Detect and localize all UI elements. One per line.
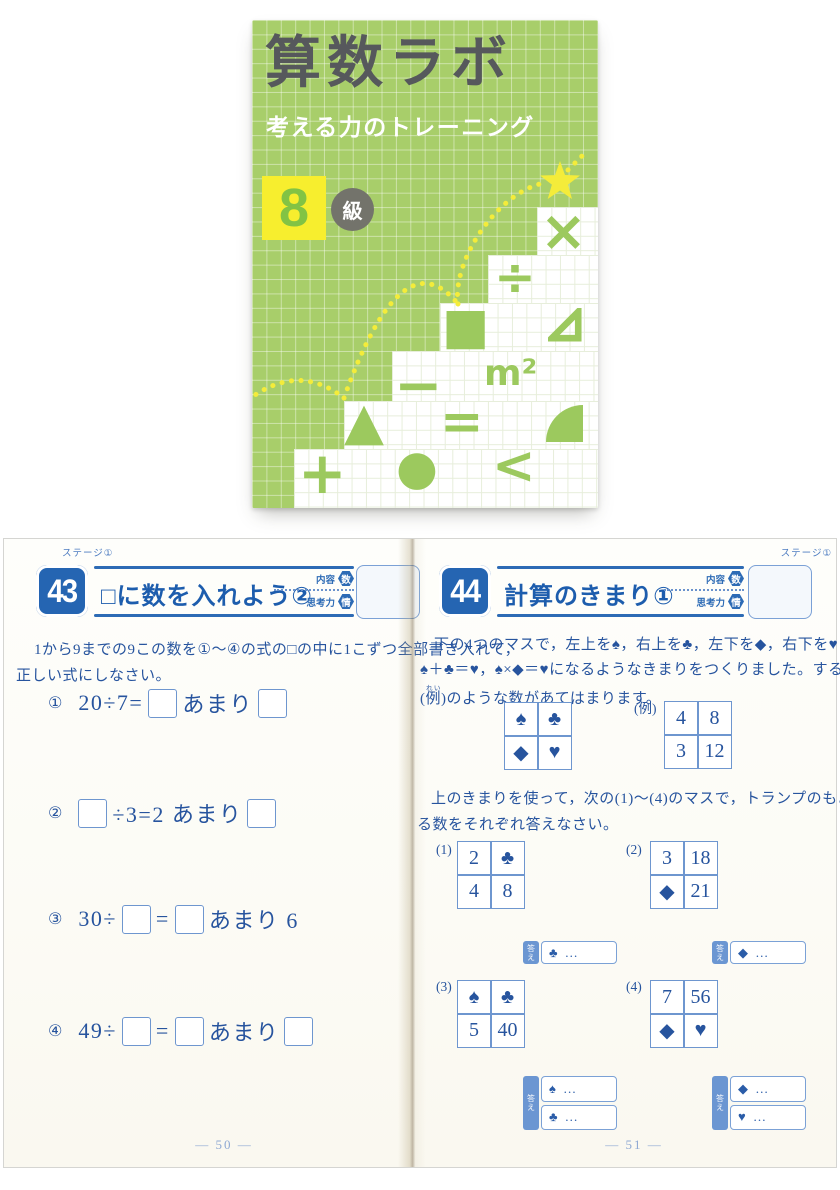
problem-row-4: ④ 49÷ = あまり [48,1015,318,1047]
grid-cell: ♣ [492,842,524,874]
answer-box-1: 答え ♣ … [523,941,617,964]
equals-icon: = [440,396,484,448]
equation-text: 49÷ [78,1018,117,1044]
example-label: (例) [634,697,657,717]
example-grid: 4 8 3 12 [664,701,732,769]
skill-badge-icon: 情 [338,594,354,610]
equation-box [175,905,204,934]
problem-row-3: ③ 30÷ = あまり 6 [48,903,299,935]
grid-cell: ♥ [539,737,571,769]
equation-box [122,1017,151,1046]
problem-number: ④ [48,1021,62,1041]
lesson-meta: 内容 数 思考力 情 [664,570,744,610]
equation-text: あまり [209,1015,280,1047]
question-grid-1: 2 ♣ 4 8 [457,841,525,909]
grid-cell: ◆ [651,1015,683,1047]
answer-label: 答え [523,1076,539,1130]
grade-number: 8 [279,181,309,235]
header-rule [94,614,354,617]
answer-field: ♥ … [730,1105,806,1131]
problem-row-2: ② ÷3=2 あまり [48,797,281,829]
question-grid-4: 7 56 ◆ ♥ [650,980,718,1048]
question-label-2: (2) [626,842,642,858]
equation-box [122,905,151,934]
grid-cell: 4 [665,702,697,734]
grid-cell: ♥ [685,1015,717,1047]
grid-cell: 21 [685,876,717,908]
content-badge-icon: 数 [338,571,354,587]
question-label-3: (3) [436,979,452,995]
grid-cell: 4 [458,876,490,908]
answer-box-3: 答え ♠ … ♣ … [523,1076,617,1130]
plus-icon: + [298,444,347,502]
grid-cell: 8 [699,702,731,734]
skill-badge-icon: 情 [728,594,744,610]
lesson-badge-43: 43 [36,565,88,617]
grid-cell: ♠ [505,703,537,735]
grid-cell: 3 [651,842,683,874]
skill-label: 思考力 [696,595,725,609]
lesson-number: 43 [47,573,76,610]
answer-field: ◆ … [730,1076,806,1102]
answer-field: ♣ … [541,941,617,964]
question-grid-2: 3 18 ◆ 21 [650,841,718,909]
lesson-badge-44: 44 [439,565,491,617]
equation-text: 30÷ [78,906,117,932]
equation-text: あまり 6 [209,903,299,935]
skill-label: 思考力 [306,595,335,609]
m-squared-icon: m² [484,356,537,392]
multiply-icon: × [540,204,587,260]
problem-number: ③ [48,909,62,929]
intro-text: 下の4つのマスで，左上を♠，右上を♣，左下を◆，右下を♥として， [434,633,840,654]
grid-cell: 5 [458,1015,490,1047]
grade-suffix-badge: 級 [331,188,374,231]
grid-cell: 40 [492,1015,524,1047]
equation-text: = [156,906,170,932]
intro-text: 正しい式にしなさい。 [16,664,171,685]
content-label: 内容 [706,572,725,586]
answer-field: ♣ … [541,1105,617,1131]
book-gutter [398,539,426,1167]
stage-label-right: ステージ① [744,545,832,559]
divide-icon: ÷ [494,252,536,302]
problem-number: ② [48,803,62,823]
content-badge-icon: 数 [728,571,744,587]
question-label-4: (4) [626,979,642,995]
minus-icon: − [394,356,443,414]
grid-cell: ♠ [458,981,490,1013]
lesson-meta: 内容 数 思考力 情 [274,570,354,610]
book-cover: × ÷ ■ − m² ▲ = + ● < 算数ラボ 考える力のトレーニング 8 … [252,20,598,508]
instruction-text: 上のきまりを使って，次の(1)～(4)のマスで，トランプのもようにあてはま [431,787,840,808]
answer-box-4: 答え ◆ … ♥ … [712,1076,806,1130]
stage-label-left: ステージ① [62,545,113,559]
problem-number: ① [48,693,62,713]
right-triangle-icon [548,308,582,342]
question-grid-3: ♠ ♣ 5 40 [457,980,525,1048]
grid-cell: ◆ [505,737,537,769]
header-rule [94,566,354,569]
question-label-1: (1) [436,842,452,858]
answer-field: ♠ … [541,1076,617,1102]
equation-text: ÷3=2 あまり [112,797,242,829]
grid-cell: ♣ [539,703,571,735]
book-spread: ステージ① 43 □に数を入れよう② 内容 数 思考力 情 1から9までの9この… [3,538,837,1168]
grid-cell: 18 [685,842,717,874]
grid-cell: ♣ [492,981,524,1013]
example-ruby: 例れい [426,691,442,707]
grid-cell: 56 [685,981,717,1013]
equation-box [284,1017,313,1046]
equation-box [78,799,107,828]
instruction-text: る数をそれぞれ答えなさい。 [417,813,619,834]
lesson-title: 計算のきまり① [504,576,675,611]
suit-rule-grid: ♠ ♣ ◆ ♥ [504,702,572,770]
cover-title: 算数ラボ [265,32,513,94]
equation-box [258,689,287,718]
content-label: 内容 [316,572,335,586]
cover-subtitle: 考える力のトレーニング [266,108,535,142]
answer-label: 答え [712,1076,728,1130]
filled-square-icon: ■ [442,301,489,351]
equation-text: あまり [182,687,253,719]
star-icon [540,161,580,199]
problem-row-1: ① 20÷7= あまり [48,687,292,719]
grid-cell: 3 [665,736,697,768]
score-box [748,565,812,619]
page-number-left: — 50 — [154,1137,294,1153]
filled-circle-icon: ● [396,444,438,492]
answer-box-2: 答え ◆ … [712,941,806,964]
meta-divider [274,589,354,591]
answer-label: 答え [712,941,728,964]
header-rule [497,566,744,569]
answer-label: 答え [523,941,539,964]
grid-cell: 7 [651,981,683,1013]
answer-field: ◆ … [730,941,806,964]
equation-text: = [156,1018,170,1044]
equation-box [148,689,177,718]
grade-badge: 8 [262,176,326,240]
grid-cell: ◆ [651,876,683,908]
meta-divider [664,589,744,591]
filled-triangle-icon: ▲ [344,396,384,448]
less-than-icon: < [492,440,536,492]
equation-box [247,799,276,828]
grid-cell: 12 [699,736,731,768]
grid-cell: 8 [492,876,524,908]
grid-cell: 2 [458,842,490,874]
header-rule [497,614,744,617]
lesson-number: 44 [450,573,479,610]
intro-text: ♠＋♣＝♥，♠×◆＝♥になるようなきまりをつくりました。すると，右下の [420,658,840,679]
page-number-right: — 51 — [564,1137,704,1153]
equation-box [175,1017,204,1046]
equation-text: 20÷7= [78,690,143,716]
